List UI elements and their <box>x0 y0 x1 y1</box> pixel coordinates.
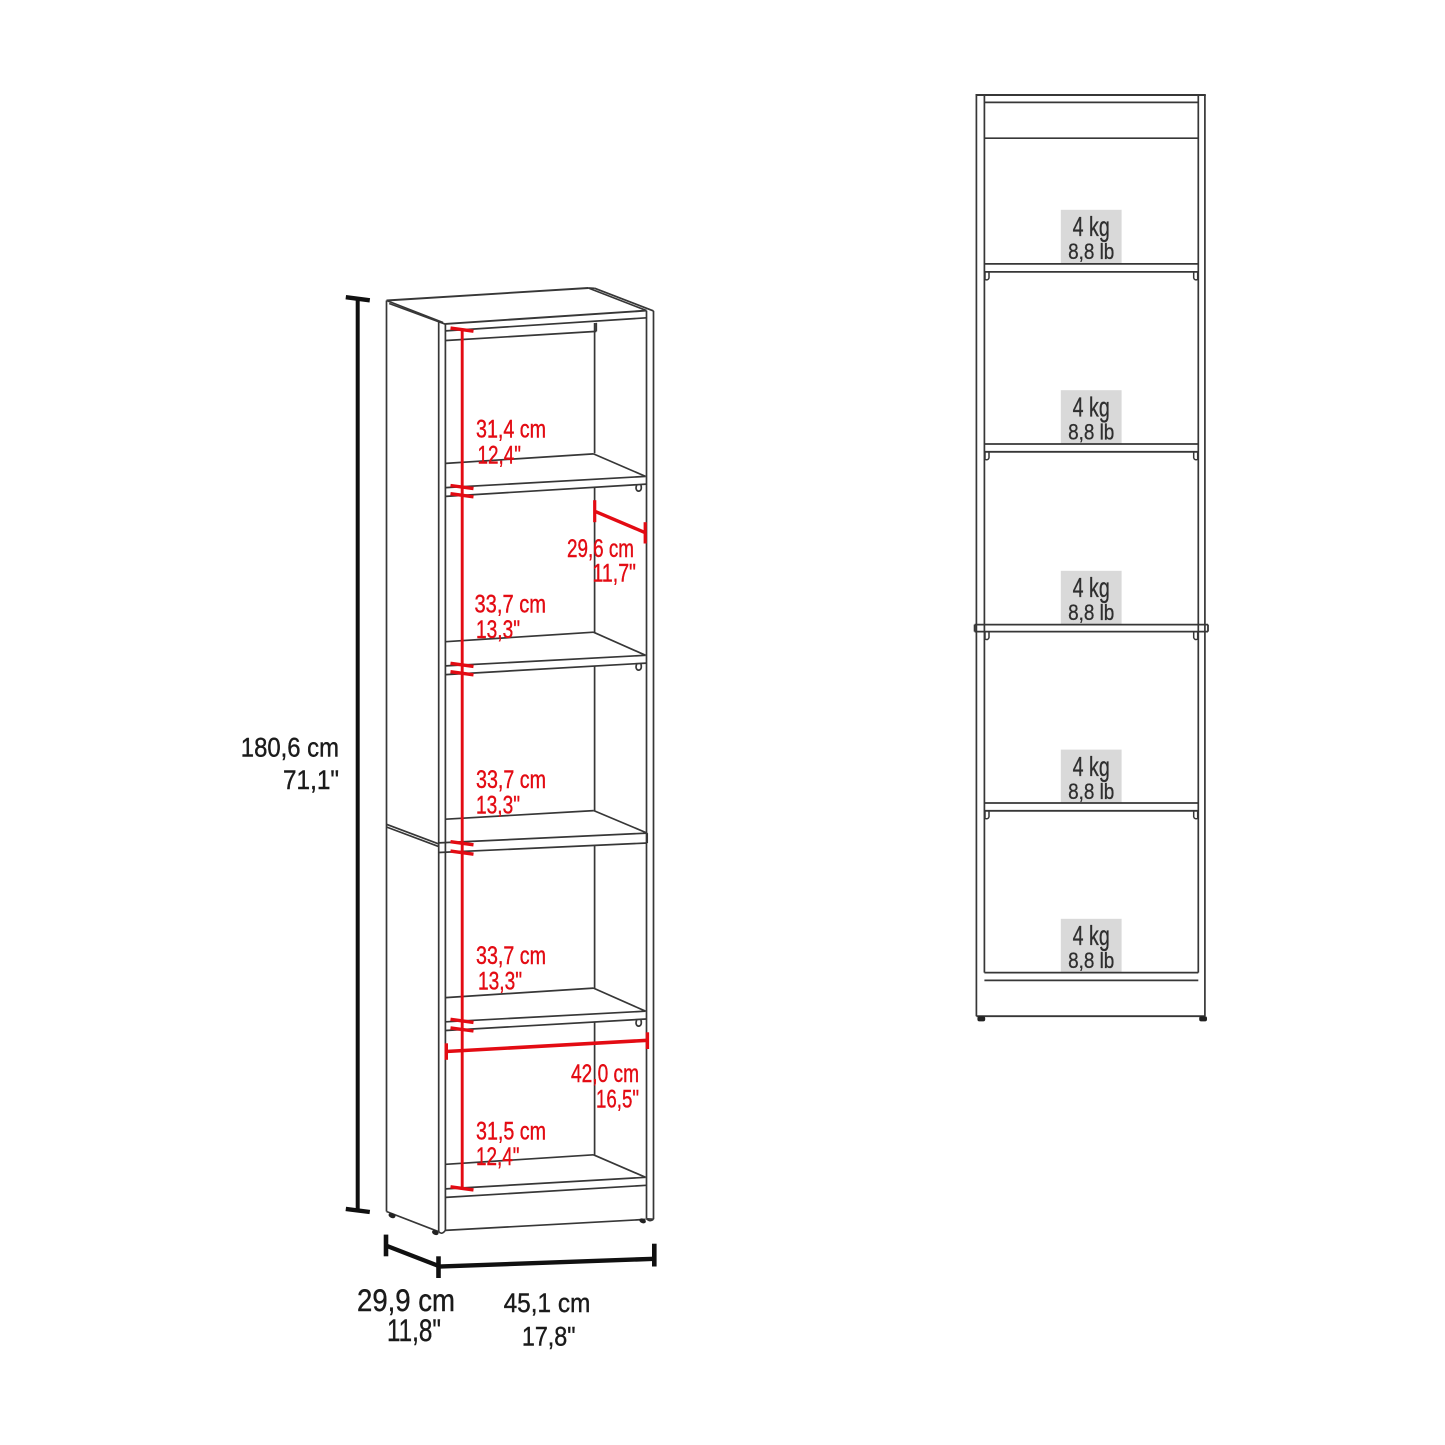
svg-text:8,8 lb: 8,8 lb <box>1068 948 1114 973</box>
svg-text:31,5 cm: 31,5 cm <box>476 1118 546 1146</box>
svg-text:31,4 cm: 31,4 cm <box>476 416 546 444</box>
svg-text:4 kg: 4 kg <box>1073 920 1110 951</box>
svg-text:11,8": 11,8" <box>387 1313 441 1348</box>
svg-text:17,8": 17,8" <box>522 1321 576 1351</box>
svg-text:13,3": 13,3" <box>476 616 520 644</box>
svg-text:8,8 lb: 8,8 lb <box>1068 779 1114 804</box>
svg-text:8,8 lb: 8,8 lb <box>1068 600 1114 625</box>
svg-text:8,8 lb: 8,8 lb <box>1068 420 1114 445</box>
svg-text:33,7 cm: 33,7 cm <box>475 590 547 618</box>
svg-text:13,3": 13,3" <box>478 968 522 996</box>
svg-text:13,3": 13,3" <box>476 792 520 820</box>
svg-text:42,0 cm: 42,0 cm <box>571 1060 639 1088</box>
svg-text:4 kg: 4 kg <box>1073 751 1110 782</box>
svg-text:11,7": 11,7" <box>593 560 637 588</box>
svg-text:33,7 cm: 33,7 cm <box>476 766 546 794</box>
svg-text:4 kg: 4 kg <box>1073 211 1110 242</box>
svg-text:8,8 lb: 8,8 lb <box>1068 239 1114 264</box>
svg-text:16,5": 16,5" <box>596 1085 639 1113</box>
svg-text:4 kg: 4 kg <box>1073 572 1110 603</box>
svg-text:4 kg: 4 kg <box>1073 392 1110 423</box>
svg-text:180,6 cm: 180,6 cm <box>241 733 339 763</box>
svg-text:71,1": 71,1" <box>283 765 339 795</box>
svg-text:12,4": 12,4" <box>476 1143 519 1171</box>
svg-text:12,4": 12,4" <box>478 442 521 470</box>
svg-text:45,1 cm: 45,1 cm <box>504 1288 591 1318</box>
svg-text:33,7 cm: 33,7 cm <box>476 942 546 970</box>
